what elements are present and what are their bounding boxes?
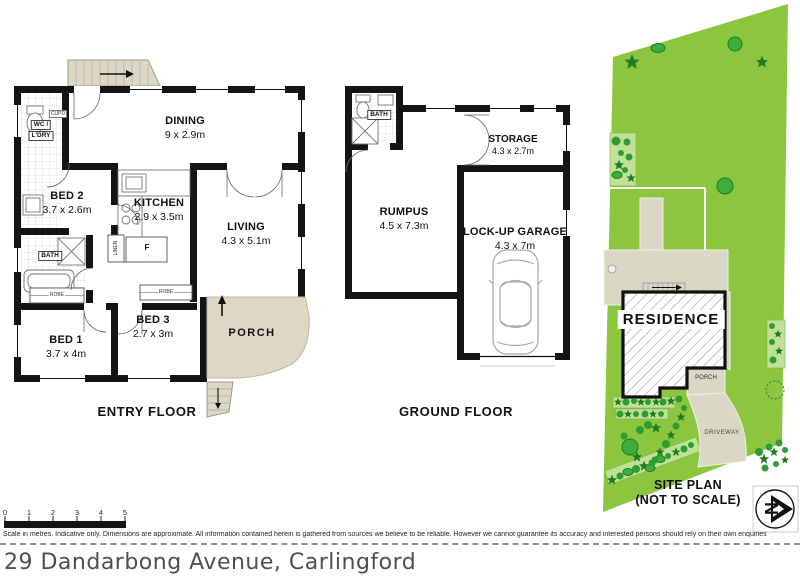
cupd-label: CUPD	[49, 110, 67, 118]
driveway-label: DRIVEWAY	[704, 430, 739, 436]
divider-rule	[0, 543, 800, 545]
site-plan-title-2: (NOT TO SCALE)	[635, 493, 740, 507]
car-icon	[489, 250, 542, 354]
site-porch-label: PORCH	[695, 375, 717, 381]
room-dining-dims: 9 x 2.9m	[165, 129, 205, 141]
room-garage-dims: 4.3 x 7m	[495, 240, 535, 252]
room-bed1-dims: 3.7 x 4m	[46, 348, 86, 360]
room-kitchen: KITCHEN	[134, 197, 184, 209]
compass-north-letter: N	[760, 502, 781, 515]
entry-top-stairs-icon	[68, 60, 160, 86]
scale-tick-2: 2	[51, 508, 55, 517]
room-living-dims: 4.3 x 5.1m	[221, 235, 270, 247]
room-storage-dims: 4.3 x 2.7m	[492, 146, 534, 156]
scale-bar	[4, 516, 126, 528]
room-bed3: BED 3	[136, 314, 169, 326]
room-bed2: BED 2	[50, 190, 83, 202]
room-bath: BATH	[38, 251, 62, 261]
basin-icon	[378, 95, 393, 105]
room-storage: STORAGE	[488, 134, 537, 145]
residence-label: RESIDENCE	[618, 310, 725, 329]
site-porch-area	[687, 368, 725, 395]
linen-label: LINEN	[113, 241, 119, 256]
room-kitchen-dims: 2.9 x 3.5m	[134, 211, 183, 223]
room-bed1: BED 1	[49, 334, 82, 346]
room-rumpus-dims: 4.5 x 7.3m	[379, 220, 428, 232]
scale-tick-5: 5	[123, 508, 127, 517]
property-address: 29 Dandarbong Avenue, Carlingford	[4, 550, 416, 575]
robe-label-1: ROBE	[49, 292, 65, 298]
room-wc-line1: WC /	[31, 120, 51, 130]
floorplan-sheet: DINING 9 x 2.9m BED 2 3.7 x 2.6m KITCHEN…	[0, 0, 800, 583]
disclaimer-text: Scale in metres. Indicative only. Dimens…	[3, 531, 798, 538]
room-bed2-dims: 3.7 x 2.6m	[42, 204, 91, 216]
scale-tick-1: 1	[27, 508, 31, 517]
room-wc-line2: L'DRY	[29, 131, 54, 141]
entry-bottom-stairs-icon	[207, 382, 233, 417]
room-dining: DINING	[165, 115, 205, 127]
site-plan	[603, 4, 798, 532]
room-living: LIVING	[227, 221, 265, 233]
water-tank-icon	[608, 265, 616, 273]
room-bed3-dims: 2.7 x 3m	[133, 328, 173, 340]
room-garage: LOCK-UP GARAGE	[463, 226, 567, 238]
room-rumpus: RUMPUS	[380, 206, 429, 218]
robe-label-2: ROBE	[158, 289, 174, 295]
entry-floor-title: ENTRY FLOOR	[97, 404, 196, 419]
ground-floor-title: GROUND FLOOR	[399, 404, 513, 419]
room-porch: PORCH	[228, 327, 275, 339]
toilet-tank-icon	[356, 95, 370, 102]
scale-tick-3: 3	[75, 508, 79, 517]
ground-bath-label: BATH	[367, 110, 391, 120]
scale-tick-4: 4	[99, 508, 103, 517]
site-plan-title-1: SITE PLAN	[654, 478, 722, 492]
fridge-label: F	[145, 243, 150, 252]
scale-tick-0: 0	[3, 508, 7, 517]
